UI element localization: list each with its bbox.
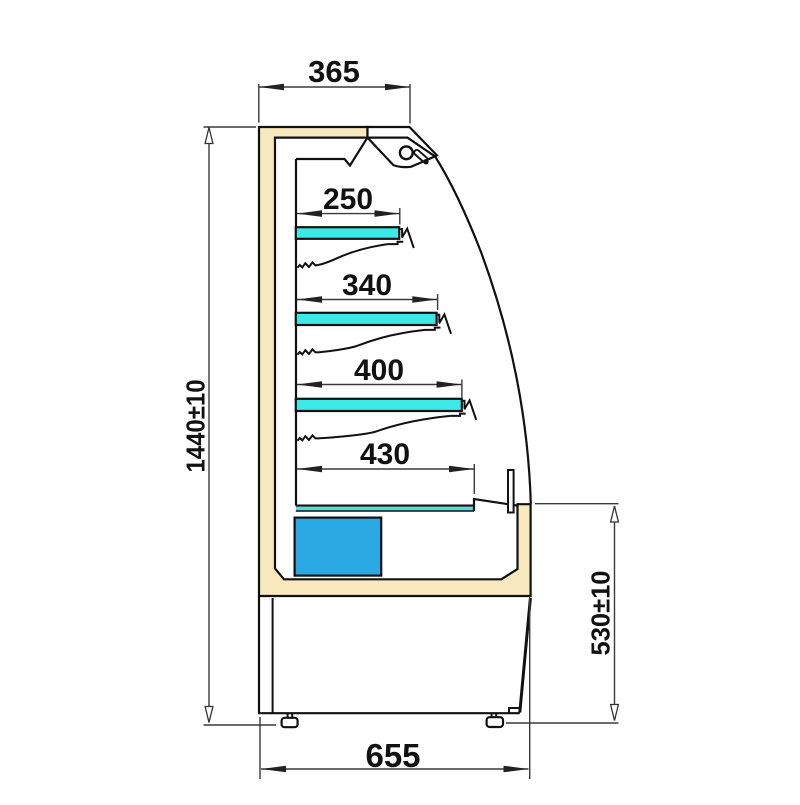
svg-text:250: 250 (323, 183, 373, 216)
svg-text:530±10: 530±10 (586, 571, 616, 656)
svg-text:365: 365 (308, 54, 360, 89)
svg-text:655: 655 (365, 737, 420, 774)
svg-text:1440±10: 1440±10 (181, 380, 211, 473)
svg-text:340: 340 (342, 269, 392, 302)
svg-text:430: 430 (360, 438, 410, 471)
svg-text:400: 400 (354, 354, 404, 387)
